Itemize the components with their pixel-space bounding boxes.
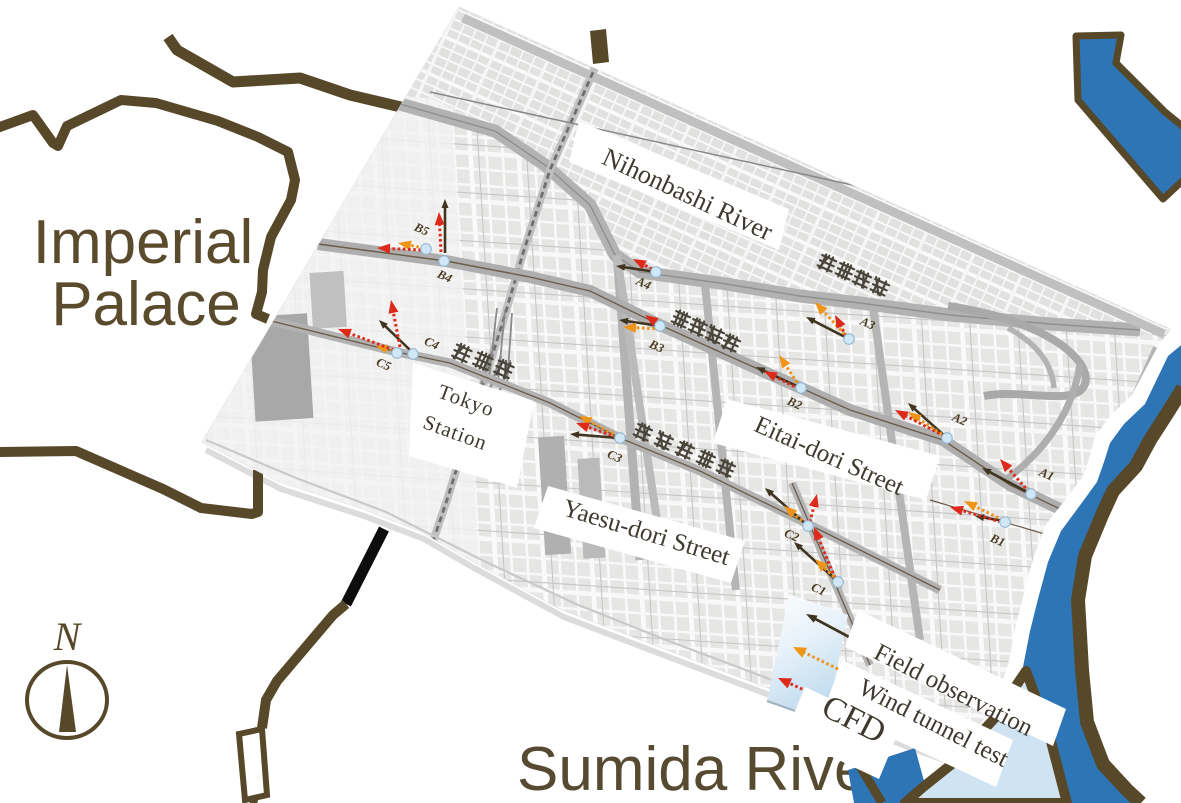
- svg-text:Palace: Palace: [51, 270, 241, 339]
- svg-text:Imperial: Imperial: [33, 208, 254, 277]
- svg-text:N: N: [53, 614, 83, 659]
